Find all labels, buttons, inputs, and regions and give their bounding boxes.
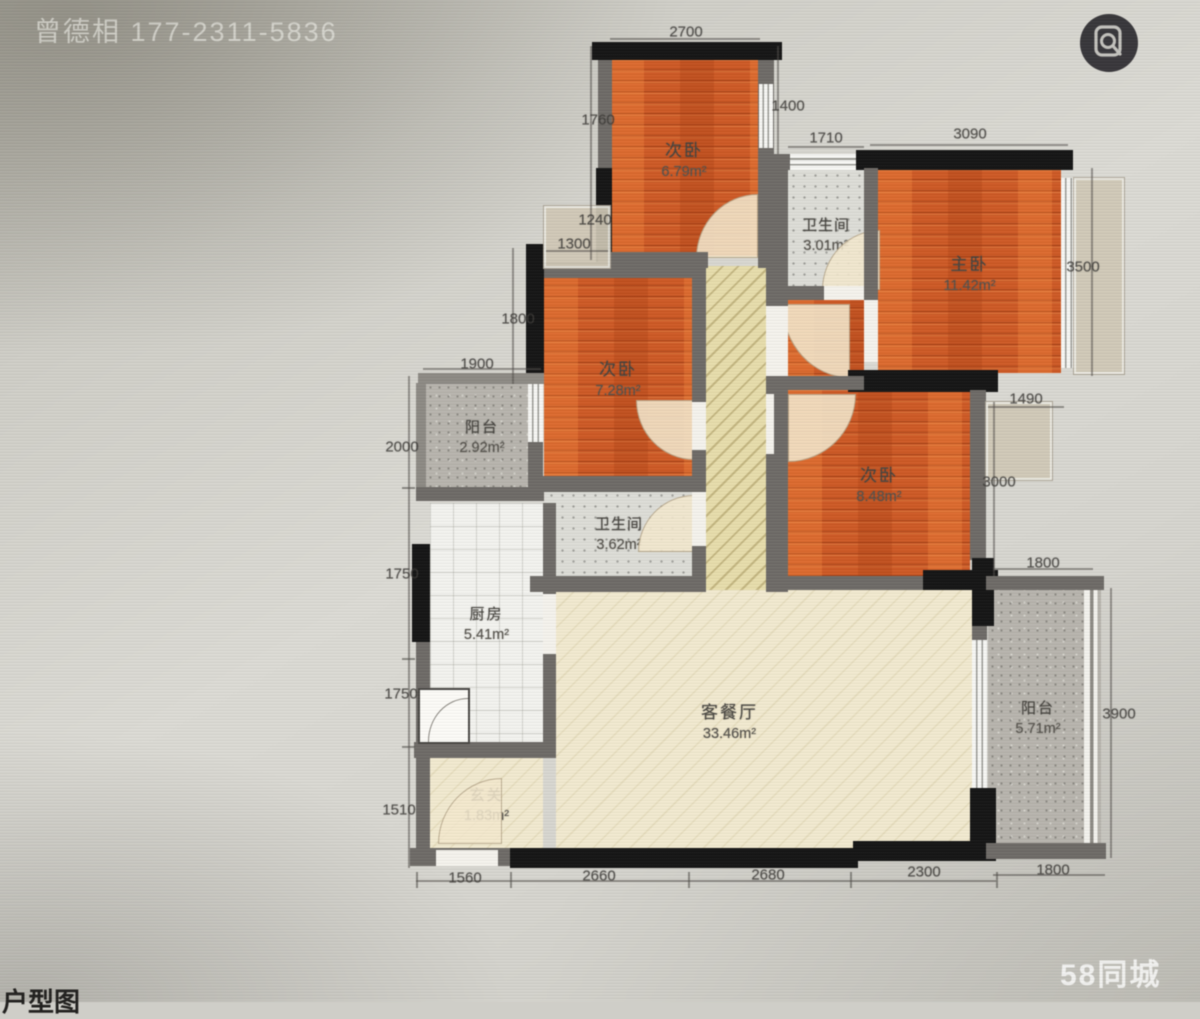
room-area: 8.48m²	[856, 489, 901, 505]
dimension-label: 1560	[448, 870, 481, 887]
room-name: 次卧	[665, 136, 703, 161]
dimension-label: 2300	[907, 864, 940, 881]
room-balcony-right: 阳台 5.71m²	[988, 590, 1088, 843]
dimension-label: 3500	[1066, 259, 1099, 276]
room-name: 次卧	[860, 461, 898, 486]
dimension-label: 1760	[581, 112, 614, 129]
room-area: 7.28m²	[595, 383, 640, 399]
window	[759, 84, 773, 148]
dimension-line	[1110, 588, 1112, 858]
room-name: 厨房	[469, 603, 503, 624]
room-name: 主卧	[951, 250, 989, 275]
wall-segment	[543, 503, 556, 594]
room-name: 阳台	[465, 416, 499, 437]
door-opening	[692, 492, 706, 546]
brand-watermark: 58同城	[1060, 950, 1161, 994]
wall-segment	[848, 370, 998, 392]
dimension-tick	[402, 658, 415, 660]
wall-segment	[412, 544, 430, 642]
wall-segment	[416, 487, 544, 501]
room-area: 3.62m²	[596, 537, 641, 553]
wall-segment	[416, 756, 430, 852]
wall-segment	[788, 576, 928, 590]
room-living-dining: 客餐厅 33.46m²	[556, 590, 973, 850]
dimension-label: 1750	[384, 686, 417, 703]
wall-segment	[780, 376, 864, 390]
dimension-label: 1800	[501, 311, 534, 328]
dimension-label: 2660	[582, 868, 615, 885]
dimension-label: 2700	[669, 24, 702, 41]
window	[790, 154, 862, 170]
wall-segment	[864, 168, 878, 300]
door-opening	[692, 402, 706, 450]
floor-plan: 次卧 6.79m² 卫生间 3.01m² 主卧 11.42m² 次卧 7.28m…	[0, 0, 1200, 1002]
fixture-door-symbol	[418, 688, 470, 744]
floor-plan-photo: 曾德相 177-2311-5836 次卧 6.79m² 卫生间 3.01m² 主…	[0, 0, 1200, 1002]
entry-door-opening	[436, 850, 498, 866]
room-area: 6.79m²	[661, 164, 706, 180]
door-opening	[766, 306, 788, 376]
room-name: 阳台	[1021, 697, 1055, 718]
corner-caption: 户型图	[2, 982, 80, 1019]
image-preview-icon[interactable]	[1080, 14, 1138, 72]
dimension-tick	[402, 487, 415, 489]
room-area: 2.92m²	[459, 440, 504, 456]
room-name: 卫生间	[595, 513, 643, 534]
dimension-label: 3090	[953, 126, 986, 143]
door-opening	[864, 300, 878, 362]
bay-window	[988, 404, 1050, 478]
magnifier-badge-icon	[1093, 25, 1125, 61]
dimension-label: 1800	[1026, 555, 1059, 572]
dimension-label: 1490	[1009, 391, 1042, 408]
wall-segment	[856, 150, 1073, 170]
wall-segment	[692, 266, 706, 402]
bay-window	[1076, 180, 1122, 372]
wall-segment	[774, 286, 824, 300]
dimension-label: 1710	[809, 130, 842, 147]
wall-segment	[774, 390, 788, 576]
dimension-label: 2000	[385, 439, 418, 456]
dimension-tick	[996, 872, 998, 888]
dimension-label: 1750	[385, 566, 418, 583]
window	[972, 640, 987, 788]
wall-segment	[986, 576, 1104, 590]
dimension-tick	[688, 872, 690, 888]
hallway	[706, 266, 766, 592]
dimension-line	[870, 144, 1068, 146]
room-area: 33.46m²	[703, 726, 756, 742]
room-area: 5.71m²	[1015, 721, 1060, 737]
dimension-label: 1800	[1036, 862, 1069, 879]
room-name: 次卧	[599, 355, 637, 380]
dimension-tick	[416, 872, 418, 888]
dimension-label: 3900	[1102, 706, 1135, 723]
wall-segment	[986, 843, 1106, 859]
dimension-label: 1400	[771, 98, 804, 115]
room-area: 11.42m²	[943, 278, 995, 294]
balcony-glass-wall	[418, 373, 544, 384]
dimension-tick	[510, 872, 512, 888]
wall-segment	[692, 450, 706, 492]
dimension-label: 1510	[382, 802, 415, 819]
wall-segment	[530, 476, 692, 492]
wall-segment	[530, 576, 706, 592]
room-balcony-left: 阳台 2.92m²	[426, 383, 538, 488]
wall-segment	[510, 848, 858, 868]
balcony-glass-wall	[1084, 590, 1101, 843]
dimension-label: 1900	[460, 356, 493, 373]
balcony-glass-wall	[416, 383, 426, 489]
wall-segment	[414, 742, 556, 758]
room-area: 5.41m²	[464, 627, 509, 643]
dimension-tick	[850, 872, 852, 888]
dimension-tick	[402, 746, 415, 748]
dimension-label: 1240	[578, 212, 611, 229]
door-opening	[543, 594, 556, 654]
wall-segment	[543, 654, 556, 743]
wall-segment	[972, 558, 994, 626]
dimension-label: 2680	[751, 867, 784, 884]
room-master-bedroom: 主卧 11.42m²	[878, 170, 1061, 373]
dimension-label: 3000	[982, 474, 1015, 491]
room-name: 客餐厅	[701, 698, 758, 723]
wall-segment	[774, 158, 788, 298]
room-name: 卫生间	[802, 214, 850, 235]
wall-segment	[592, 42, 782, 60]
window	[528, 384, 543, 442]
wall-segment	[970, 788, 996, 846]
dimension-label: 1300	[557, 236, 590, 253]
